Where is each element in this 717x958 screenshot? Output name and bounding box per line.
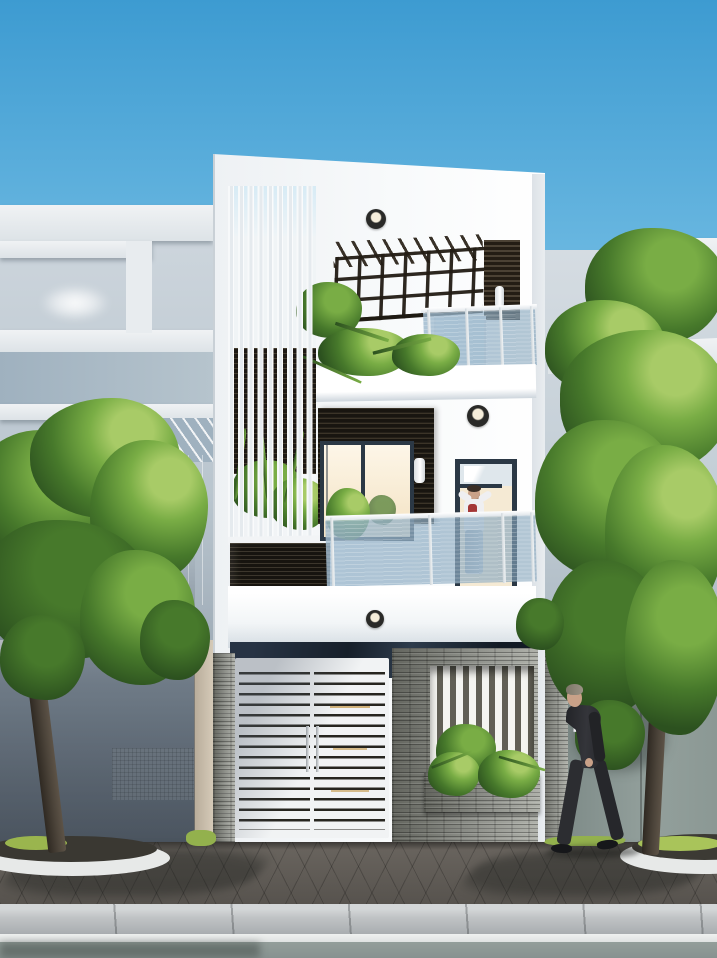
street-scene-render <box>0 0 717 958</box>
man-hand <box>585 758 593 767</box>
man-hair <box>566 684 583 695</box>
man-back-leg <box>592 758 624 841</box>
man-front-leg <box>556 759 585 846</box>
walking-man <box>0 0 717 958</box>
